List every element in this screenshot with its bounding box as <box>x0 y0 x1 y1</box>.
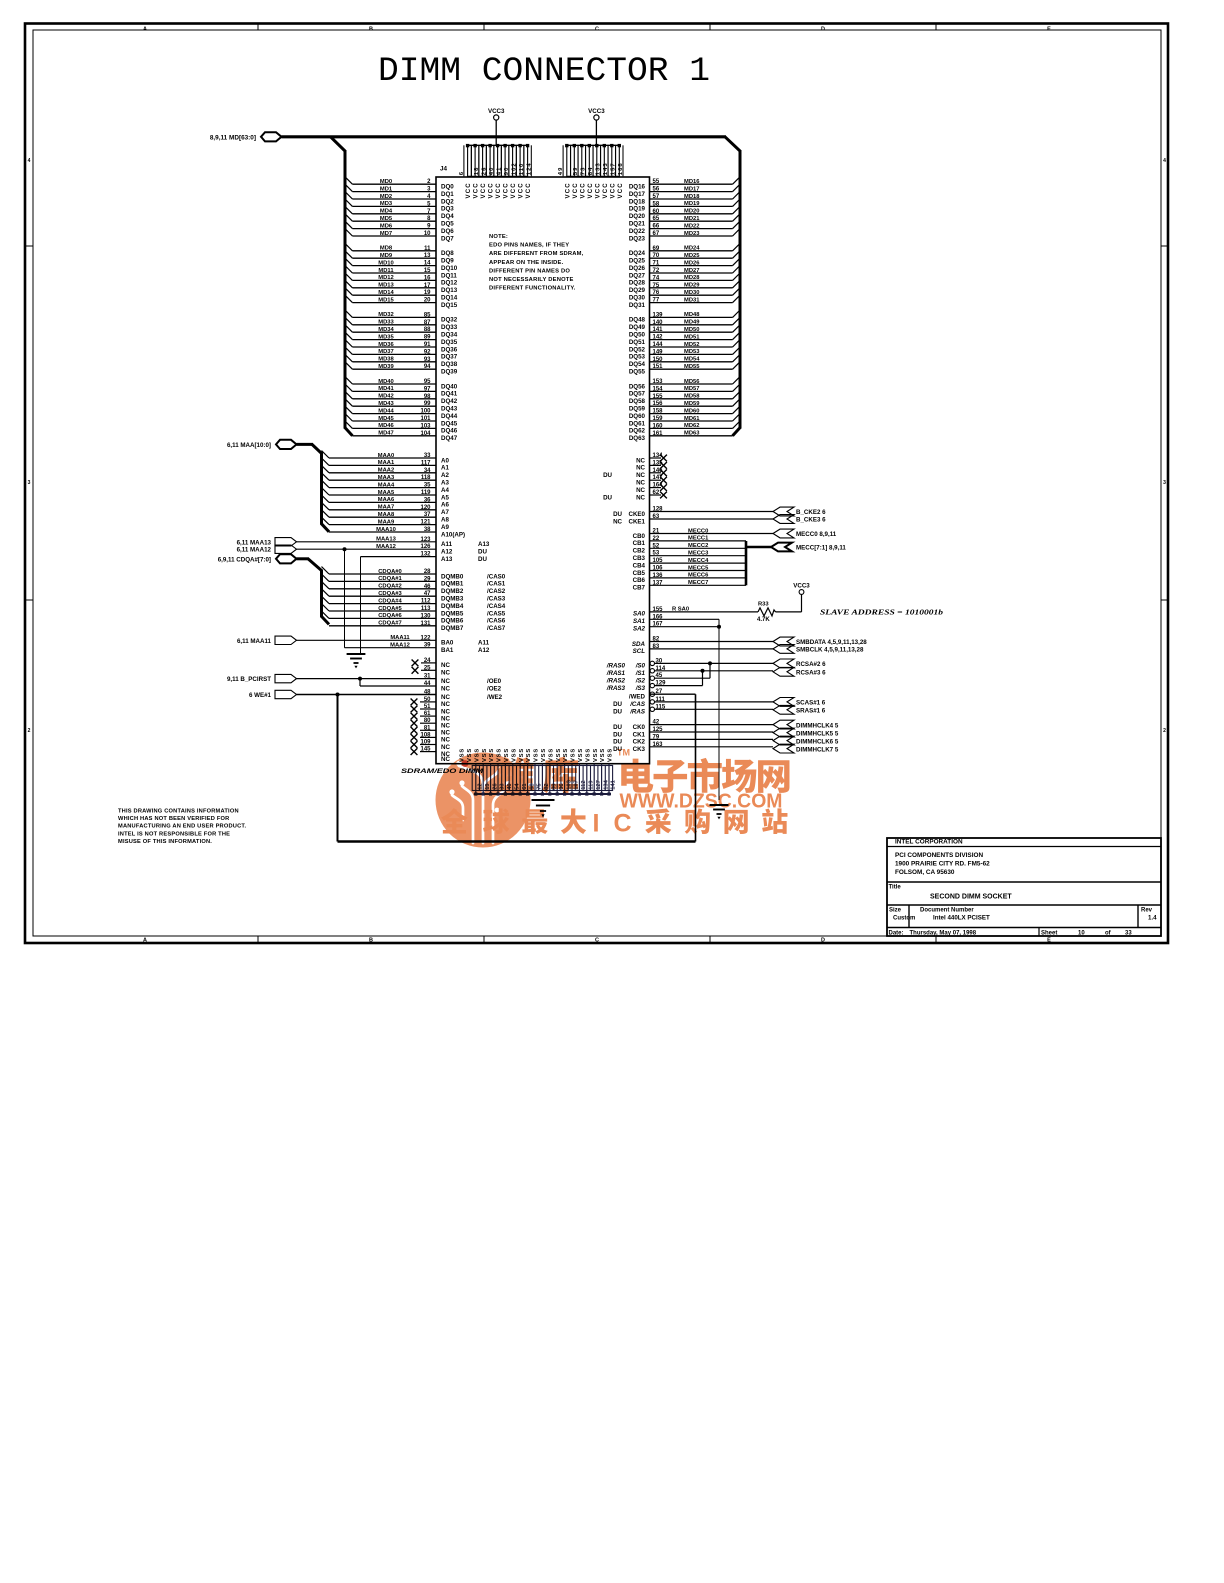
svg-text:DQ60: DQ60 <box>629 413 646 420</box>
svg-text:MD33: MD33 <box>378 320 394 326</box>
svg-text:10: 10 <box>424 231 431 237</box>
svg-text:82: 82 <box>653 637 660 643</box>
svg-text:141: 141 <box>653 327 664 333</box>
svg-text:26: 26 <box>482 167 488 176</box>
svg-text:RCSA#2 6: RCSA#2 6 <box>796 661 826 668</box>
svg-text:MD60: MD60 <box>684 408 699 414</box>
svg-text:/S0: /S0 <box>635 663 646 670</box>
svg-text:Document Number: Document Number <box>920 908 974 914</box>
svg-text:MAA3: MAA3 <box>378 475 395 481</box>
svg-text:MAA6: MAA6 <box>378 497 395 503</box>
svg-text:103: 103 <box>420 423 431 429</box>
svg-text:VCC: VCC <box>496 182 502 198</box>
svg-text:DQ51: DQ51 <box>629 339 646 346</box>
svg-text:DU: DU <box>478 556 487 563</box>
svg-text:DU: DU <box>613 709 622 716</box>
svg-text:DQ16: DQ16 <box>629 184 646 191</box>
svg-text:MD38: MD38 <box>378 357 394 363</box>
svg-text:33: 33 <box>1125 930 1132 936</box>
svg-text:Date:: Date: <box>889 930 904 936</box>
svg-text:/RAS1: /RAS1 <box>606 670 626 677</box>
svg-text:R SA0: R SA0 <box>672 606 689 612</box>
svg-text:60: 60 <box>653 209 660 215</box>
svg-text:VCC: VCC <box>573 182 579 198</box>
svg-text:6,11 MAA12: 6,11 MAA12 <box>237 547 272 554</box>
svg-text:MECC6: MECC6 <box>688 573 709 579</box>
svg-text:134: 134 <box>653 453 664 459</box>
svg-text:137: 137 <box>653 580 664 586</box>
svg-text:VSS: VSS <box>593 748 599 762</box>
svg-text:29: 29 <box>424 576 431 582</box>
svg-text:95: 95 <box>424 379 431 385</box>
svg-text:DQ38: DQ38 <box>441 361 458 368</box>
svg-text:MD1: MD1 <box>380 186 393 192</box>
svg-text:DQMB4: DQMB4 <box>441 603 464 610</box>
svg-text:MD49: MD49 <box>684 320 700 326</box>
svg-text:VCC: VCC <box>595 182 601 198</box>
svg-text:MAA2: MAA2 <box>378 468 394 474</box>
svg-text:R33: R33 <box>758 602 769 608</box>
svg-text:MD43: MD43 <box>378 401 394 407</box>
svg-text:MECC2: MECC2 <box>688 543 708 549</box>
svg-text:A1: A1 <box>441 465 449 472</box>
svg-text:CB2: CB2 <box>633 548 646 555</box>
svg-text:DIMMHCLK6 5: DIMMHCLK6 5 <box>796 738 839 745</box>
svg-text:DIMMHCLK4 5: DIMMHCLK4 5 <box>796 722 839 729</box>
svg-text:MD12: MD12 <box>378 275 393 281</box>
svg-text:110: 110 <box>519 163 525 176</box>
svg-text:DQ14: DQ14 <box>441 295 458 302</box>
svg-text:/CAS6: /CAS6 <box>487 618 506 625</box>
svg-text:APPEAR ON THE INSIDE.: APPEAR ON THE INSIDE. <box>489 260 564 266</box>
svg-text:2: 2 <box>1163 728 1166 734</box>
svg-text:VCC: VCC <box>588 182 594 198</box>
svg-text:A: A <box>143 27 147 33</box>
svg-text:DIMMHCLK5 5: DIMMHCLK5 5 <box>796 730 839 737</box>
svg-text:VCC: VCC <box>504 182 510 198</box>
svg-text:122: 122 <box>420 635 431 641</box>
svg-text:83: 83 <box>653 644 660 650</box>
svg-text:146: 146 <box>653 468 664 474</box>
svg-text:MD54: MD54 <box>684 357 700 363</box>
svg-text:69: 69 <box>653 246 660 252</box>
svg-text:55: 55 <box>653 179 660 185</box>
svg-text:DQ49: DQ49 <box>629 324 646 331</box>
svg-text:A13: A13 <box>478 541 490 548</box>
svg-text:PCI COMPONENTS DIVISION: PCI COMPONENTS DIVISION <box>895 852 983 859</box>
svg-text:41: 41 <box>497 167 503 176</box>
svg-text:94: 94 <box>424 364 431 370</box>
svg-text:NC: NC <box>441 723 450 730</box>
svg-text:3: 3 <box>28 480 31 486</box>
svg-text:10: 10 <box>1078 930 1085 936</box>
svg-text:/CAS3: /CAS3 <box>487 596 506 603</box>
svg-text:159: 159 <box>653 416 664 422</box>
svg-text:MAA12: MAA12 <box>376 544 396 550</box>
svg-text:9,11 B_PCIRST: 9,11 B_PCIRST <box>227 676 271 683</box>
svg-text:Sheet: Sheet <box>1041 930 1057 936</box>
svg-text:CB7: CB7 <box>633 585 646 592</box>
svg-text:DQ12: DQ12 <box>441 280 458 287</box>
svg-text:/RAS2: /RAS2 <box>606 678 626 685</box>
svg-text:117: 117 <box>421 460 431 466</box>
svg-text:MD53: MD53 <box>684 349 700 355</box>
svg-text:NC: NC <box>636 457 645 464</box>
svg-text:VCC: VCC <box>565 182 571 198</box>
svg-text:133: 133 <box>596 162 602 175</box>
svg-text:DU: DU <box>603 472 612 479</box>
svg-text:CKE0: CKE0 <box>628 511 645 518</box>
svg-text:DQMB3: DQMB3 <box>441 596 464 603</box>
svg-text:6: 6 <box>459 171 465 175</box>
svg-text:DQ47: DQ47 <box>441 435 458 442</box>
svg-text:145: 145 <box>420 747 431 753</box>
svg-text:87: 87 <box>424 320 431 326</box>
svg-text:MD48: MD48 <box>684 312 700 318</box>
svg-text:TM: TM <box>617 748 630 758</box>
svg-text:VSS: VSS <box>578 748 584 762</box>
svg-text:DQ27: DQ27 <box>629 272 646 279</box>
svg-text:91: 91 <box>424 342 431 348</box>
svg-text:50: 50 <box>424 697 431 703</box>
svg-text:Thursday, May 07, 1998: Thursday, May 07, 1998 <box>910 930 977 936</box>
svg-text:MD10: MD10 <box>378 260 393 266</box>
svg-text:MD16: MD16 <box>684 179 700 185</box>
svg-text:MECC0: MECC0 <box>688 528 708 534</box>
svg-text:MD61: MD61 <box>684 416 700 422</box>
svg-text:MD37: MD37 <box>378 349 393 355</box>
svg-text:81: 81 <box>424 725 431 731</box>
svg-text:VSS: VSS <box>541 748 547 762</box>
svg-text:VCC: VCC <box>481 182 487 198</box>
svg-text:VSS: VSS <box>571 748 577 762</box>
svg-text:Custom: Custom <box>893 916 915 922</box>
svg-text:CDQA#3: CDQA#3 <box>378 591 402 597</box>
svg-text:DQ58: DQ58 <box>629 398 646 405</box>
svg-text:51: 51 <box>424 704 431 710</box>
svg-text:MECC1: MECC1 <box>688 536 709 542</box>
svg-text:98: 98 <box>424 394 431 400</box>
svg-text:MD34: MD34 <box>378 327 394 333</box>
svg-text:75: 75 <box>653 283 660 289</box>
svg-text:DQ55: DQ55 <box>629 369 646 376</box>
svg-text:44: 44 <box>424 681 431 687</box>
svg-text:DU: DU <box>613 724 622 731</box>
svg-text:VCC: VCC <box>603 182 609 198</box>
svg-text:DQMB7: DQMB7 <box>441 625 464 632</box>
svg-text:135: 135 <box>653 460 664 466</box>
svg-text:DQ13: DQ13 <box>441 287 458 294</box>
svg-text:DQMB1: DQMB1 <box>441 581 464 588</box>
svg-text:67: 67 <box>653 231 660 237</box>
svg-text:DU: DU <box>478 549 487 556</box>
svg-text:14: 14 <box>424 261 431 267</box>
svg-text:MD17: MD17 <box>684 186 699 192</box>
svg-text:A7: A7 <box>441 509 449 516</box>
svg-text:DQMB2: DQMB2 <box>441 588 464 595</box>
svg-text:DU: DU <box>613 511 622 518</box>
svg-text:MD46: MD46 <box>378 423 394 429</box>
svg-text:C: C <box>595 27 599 33</box>
svg-text:DQ6: DQ6 <box>441 228 454 235</box>
svg-text:MD9: MD9 <box>380 253 393 259</box>
svg-text:52: 52 <box>653 543 660 549</box>
svg-text:168: 168 <box>618 162 624 175</box>
svg-text:A2: A2 <box>441 472 449 479</box>
svg-text:104: 104 <box>420 431 431 437</box>
svg-text:CKE1: CKE1 <box>628 518 645 525</box>
svg-text:MD26: MD26 <box>684 260 700 266</box>
svg-text:Intel 440LX PCISET: Intel 440LX PCISET <box>933 915 990 922</box>
svg-text:/CAS7: /CAS7 <box>487 625 506 632</box>
svg-text:136: 136 <box>653 573 664 579</box>
svg-text:CDQA#0: CDQA#0 <box>378 569 402 575</box>
svg-text:108: 108 <box>420 732 431 738</box>
svg-text:/CAS1: /CAS1 <box>487 581 506 588</box>
svg-text:4.7K: 4.7K <box>757 617 770 623</box>
svg-text:NC: NC <box>636 472 645 479</box>
svg-text:NC: NC <box>441 730 450 737</box>
svg-text:VCC: VCC <box>474 182 480 198</box>
svg-text:CK0: CK0 <box>633 724 646 731</box>
svg-text:DQ46: DQ46 <box>441 428 458 435</box>
svg-text:MD21: MD21 <box>684 216 700 222</box>
svg-text:J4: J4 <box>440 166 448 173</box>
svg-text:DQ28: DQ28 <box>629 280 646 287</box>
svg-text:MD52: MD52 <box>684 342 699 348</box>
svg-text:142: 142 <box>653 335 664 341</box>
svg-text:SA1: SA1 <box>633 618 646 625</box>
svg-text:1900 PRAIRIE CITY RD. FM5-62: 1900 PRAIRIE CITY RD. FM5-62 <box>895 861 990 868</box>
svg-text:FOLSOM, CA 95630: FOLSOM, CA 95630 <box>895 869 955 876</box>
svg-text:47: 47 <box>424 591 431 597</box>
svg-text:MAA1: MAA1 <box>378 460 395 466</box>
svg-text:DU: DU <box>603 494 612 501</box>
svg-text:39: 39 <box>424 643 431 649</box>
svg-text:CK2: CK2 <box>633 739 646 746</box>
svg-text:VSS: VSS <box>585 748 591 762</box>
svg-text:DQ18: DQ18 <box>629 198 646 205</box>
svg-text:E: E <box>1047 938 1051 944</box>
svg-text:VCC3: VCC3 <box>488 108 505 115</box>
svg-text:40: 40 <box>489 167 495 176</box>
svg-text:CB1: CB1 <box>633 540 646 547</box>
svg-text:70: 70 <box>653 253 660 259</box>
svg-text:C: C <box>595 938 599 944</box>
svg-text:56: 56 <box>653 187 660 193</box>
svg-text:73: 73 <box>581 167 587 176</box>
svg-text:1.4: 1.4 <box>1148 915 1157 922</box>
svg-text:/OE2: /OE2 <box>487 685 502 692</box>
svg-text:164: 164 <box>653 483 664 489</box>
svg-text:101: 101 <box>420 416 431 422</box>
svg-text:NC: NC <box>441 744 450 751</box>
svg-text:DQ17: DQ17 <box>629 191 646 198</box>
svg-text:147: 147 <box>653 475 664 481</box>
svg-text:MD18: MD18 <box>684 194 700 200</box>
svg-text:MD8: MD8 <box>380 246 393 252</box>
svg-text:DQ22: DQ22 <box>629 228 646 235</box>
svg-text:DQ26: DQ26 <box>629 265 646 272</box>
svg-text:CB4: CB4 <box>633 562 646 569</box>
svg-text:27: 27 <box>656 689 663 695</box>
svg-text:NC: NC <box>441 756 450 763</box>
svg-text:DQ21: DQ21 <box>629 221 646 228</box>
svg-text:/OE0: /OE0 <box>487 678 502 685</box>
svg-text:156: 156 <box>653 401 664 407</box>
svg-text:DQ9: DQ9 <box>441 258 454 265</box>
svg-text:MD0: MD0 <box>380 179 392 185</box>
svg-text:MD35: MD35 <box>378 334 394 340</box>
svg-text:MECC[7:1] 8,9,11: MECC[7:1] 8,9,11 <box>796 545 846 552</box>
svg-text:CB6: CB6 <box>633 577 646 584</box>
svg-text:150: 150 <box>653 357 664 363</box>
svg-text:MD40: MD40 <box>378 379 393 385</box>
svg-text:A8: A8 <box>441 517 449 524</box>
svg-text:MAA12: MAA12 <box>390 643 410 649</box>
svg-text:/CAS4: /CAS4 <box>487 603 506 610</box>
svg-text:77: 77 <box>653 298 660 304</box>
svg-text:20: 20 <box>424 298 431 304</box>
svg-text:154: 154 <box>653 386 664 392</box>
svg-text:99: 99 <box>424 401 431 407</box>
svg-text:SA2: SA2 <box>633 625 646 632</box>
svg-text:A6: A6 <box>441 502 449 509</box>
svg-text:166: 166 <box>653 614 664 620</box>
svg-text:DQ41: DQ41 <box>441 391 458 398</box>
svg-text:A12: A12 <box>478 647 490 654</box>
svg-text:DQ10: DQ10 <box>441 265 458 272</box>
svg-text:140: 140 <box>653 320 664 326</box>
svg-text:102: 102 <box>512 162 518 175</box>
svg-text:VCC: VCC <box>618 182 624 198</box>
svg-text:CDQA#7: CDQA#7 <box>378 621 402 627</box>
svg-text:NC: NC <box>441 685 450 692</box>
svg-text:Title: Title <box>889 885 902 891</box>
svg-text:6,9,11 CDQA#[7:0]: 6,9,11 CDQA#[7:0] <box>218 556 271 563</box>
svg-text:MD2: MD2 <box>380 194 392 200</box>
svg-text:/CAS2: /CAS2 <box>487 588 506 595</box>
svg-text:97: 97 <box>424 386 431 392</box>
svg-text:57: 57 <box>653 194 660 200</box>
svg-text:NC: NC <box>441 694 450 701</box>
svg-text:DQ5: DQ5 <box>441 221 454 228</box>
svg-text:DQ4: DQ4 <box>441 213 454 220</box>
svg-text:MD13: MD13 <box>378 283 394 289</box>
svg-text:SCAS#1 6: SCAS#1 6 <box>796 699 826 706</box>
svg-text:6 WE#1: 6 WE#1 <box>249 692 272 699</box>
svg-text:E: E <box>1047 27 1051 33</box>
svg-text:A9: A9 <box>441 524 449 531</box>
svg-text:SRAS#1 6: SRAS#1 6 <box>796 707 826 714</box>
svg-text:DQ1: DQ1 <box>441 191 454 198</box>
svg-text:MD3: MD3 <box>380 201 393 207</box>
svg-text:DU: DU <box>613 731 622 738</box>
svg-text:MD30: MD30 <box>684 290 699 296</box>
svg-text:NOT NECESSARILY DENOTE: NOT NECESSARILY DENOTE <box>489 277 574 283</box>
svg-text:DU: DU <box>613 701 622 708</box>
svg-text:MAA0: MAA0 <box>378 453 394 459</box>
svg-text:DQ40: DQ40 <box>441 383 458 390</box>
svg-text:MECC4: MECC4 <box>688 558 709 564</box>
svg-text:MAA9: MAA9 <box>378 519 395 525</box>
svg-text:DQ7: DQ7 <box>441 235 454 242</box>
svg-text:MD23: MD23 <box>684 231 700 237</box>
svg-text:155: 155 <box>653 394 664 400</box>
svg-text:MD24: MD24 <box>684 246 700 252</box>
svg-text:DQ63: DQ63 <box>629 435 646 442</box>
svg-text:118: 118 <box>421 475 431 481</box>
svg-text:121: 121 <box>420 520 431 526</box>
svg-text:SMBCLK 4,5,9,11,13,28: SMBCLK 4,5,9,11,13,28 <box>796 646 864 653</box>
svg-text:2: 2 <box>28 728 31 734</box>
svg-text:VCC3: VCC3 <box>793 583 810 590</box>
svg-text:DQ3: DQ3 <box>441 206 454 213</box>
svg-text:/S1: /S1 <box>635 670 646 677</box>
svg-text:VCC: VCC <box>580 182 586 198</box>
svg-text:126: 126 <box>420 544 431 550</box>
svg-text:66: 66 <box>653 224 660 230</box>
svg-text:DQ54: DQ54 <box>629 361 646 368</box>
svg-text:DQ39: DQ39 <box>441 369 458 376</box>
svg-text:NC: NC <box>441 662 450 669</box>
svg-text:VCC: VCC <box>511 182 517 198</box>
svg-text:VCC: VCC <box>466 182 472 198</box>
svg-text:DQ36: DQ36 <box>441 346 458 353</box>
svg-text:DQ33: DQ33 <box>441 324 458 331</box>
svg-text:72: 72 <box>653 268 660 274</box>
svg-text:B_CKE3 6: B_CKE3 6 <box>796 517 826 524</box>
svg-text:MD31: MD31 <box>684 297 700 303</box>
svg-text:48: 48 <box>424 690 431 696</box>
svg-text:DQ45: DQ45 <box>441 420 458 427</box>
svg-text:149: 149 <box>653 349 664 355</box>
svg-text:/S3: /S3 <box>635 685 646 692</box>
svg-text:A4: A4 <box>441 487 449 494</box>
svg-text:100: 100 <box>420 409 431 415</box>
svg-text:DQ23: DQ23 <box>629 235 646 242</box>
svg-text:DQ62: DQ62 <box>629 428 646 435</box>
svg-text:19: 19 <box>424 290 431 296</box>
svg-text:113: 113 <box>421 606 431 612</box>
svg-text:151: 151 <box>653 364 664 370</box>
svg-text:63: 63 <box>653 514 660 520</box>
svg-text:58: 58 <box>653 201 660 207</box>
svg-text:NC: NC <box>636 487 645 494</box>
svg-text:141: 141 <box>611 779 617 789</box>
svg-text:167: 167 <box>653 622 664 628</box>
svg-text:NC: NC <box>636 465 645 472</box>
svg-text:MECC0 8,9,11: MECC0 8,9,11 <box>796 531 837 538</box>
svg-text:EDO PINS NAMES, IF THEY: EDO PINS NAMES, IF THEY <box>489 243 569 249</box>
svg-text:VSS: VSS <box>534 748 540 762</box>
svg-text:130: 130 <box>420 613 431 619</box>
svg-text:SDA: SDA <box>632 641 646 648</box>
svg-text:MD28: MD28 <box>684 275 700 281</box>
svg-text:DIMM CONNECTOR 1: DIMM CONNECTOR 1 <box>378 52 710 91</box>
svg-text:MD44: MD44 <box>378 408 394 414</box>
svg-text:124: 124 <box>527 162 533 175</box>
svg-text:RCSA#3 6: RCSA#3 6 <box>796 670 826 677</box>
svg-text:18: 18 <box>474 167 480 176</box>
svg-text:VSS: VSS <box>608 748 614 762</box>
svg-text:VCC: VCC <box>610 182 616 198</box>
svg-text:85: 85 <box>424 312 431 318</box>
svg-text:80: 80 <box>424 718 431 724</box>
svg-text:A13: A13 <box>441 556 453 563</box>
svg-text:132: 132 <box>420 552 431 558</box>
svg-text:WHICH HAS NOT BEEN VERIFIED FO: WHICH HAS NOT BEEN VERIFIED FOR <box>118 816 229 822</box>
